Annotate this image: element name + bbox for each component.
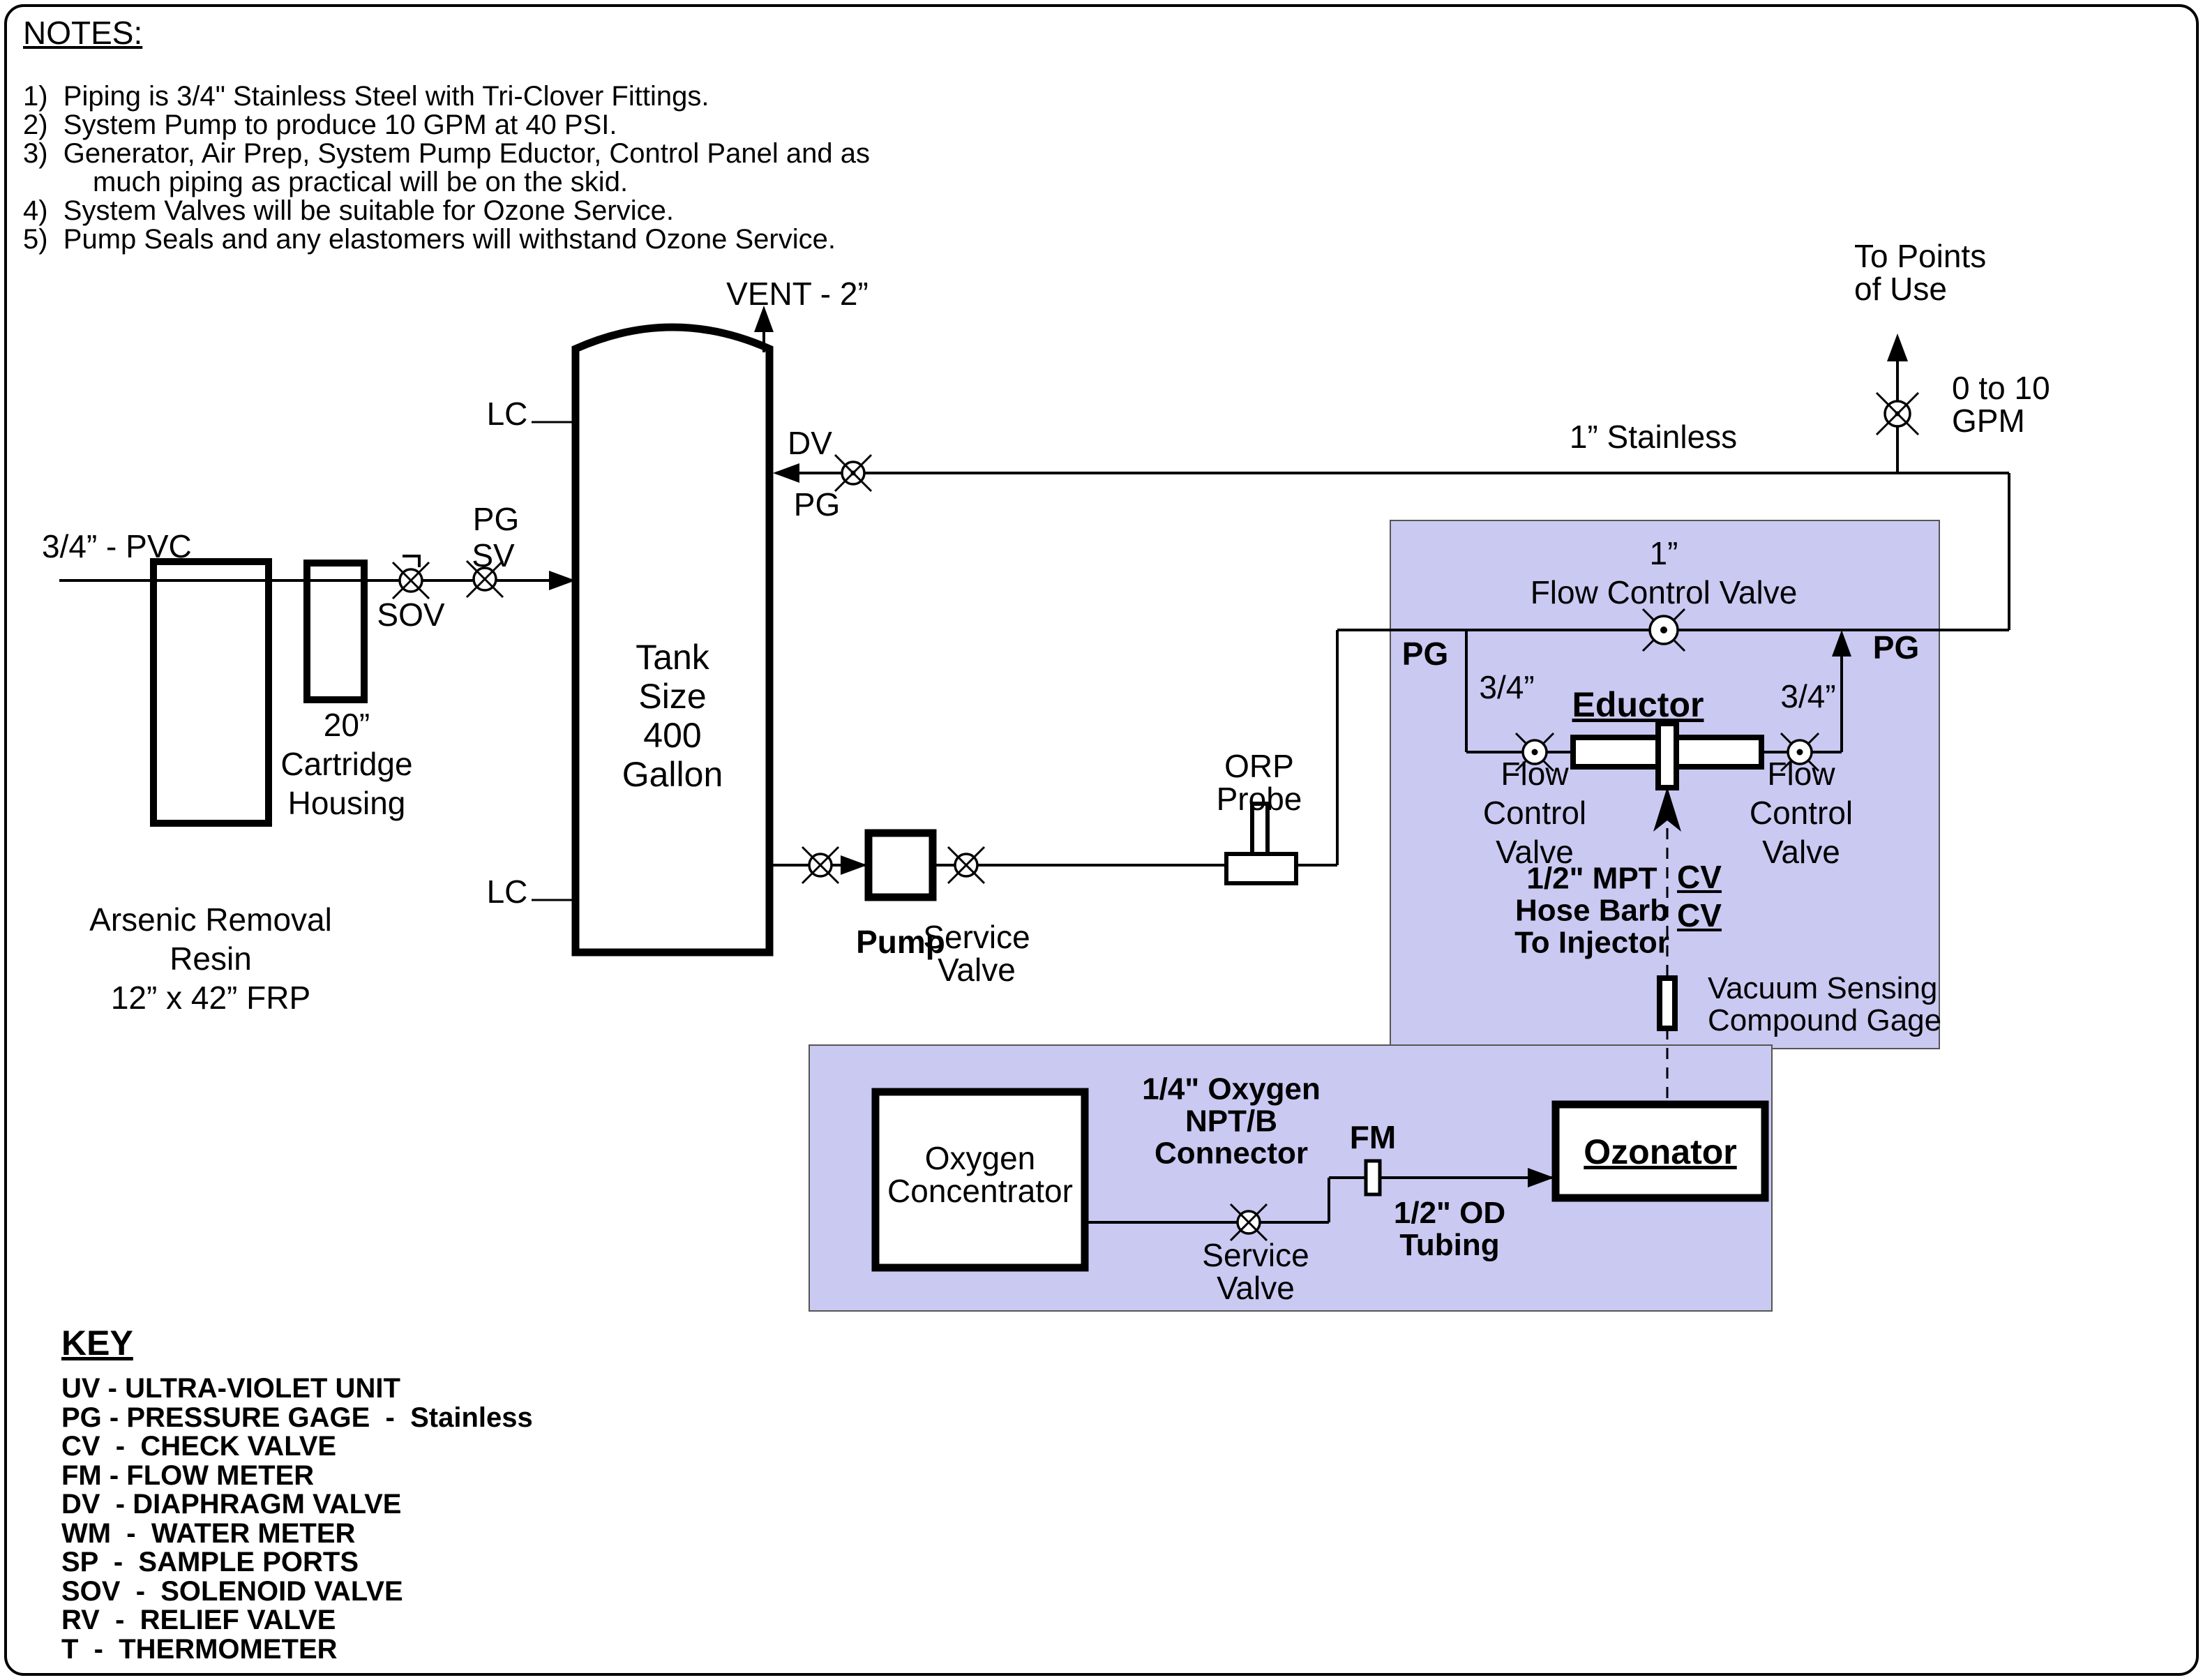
key-item-sp: SP - SAMPLE PORTS: [61, 1548, 533, 1577]
pid-drawing: NOTES: 1) Piping is 3/4" Stainless Steel…: [0, 0, 2203, 1680]
arsenic-resin-vessel: [153, 562, 269, 823]
eductor-label: Eductor: [1572, 685, 1704, 724]
arsenic-resin-label: Arsenic Removal Resin 12” x 42” FRP: [89, 900, 332, 1017]
vacuum-gage-label: Vacuum Sensing Compound Gage: [1708, 973, 1941, 1037]
note-line-1: 1) Piping is 3/4" Stainless Steel with T…: [23, 82, 870, 111]
o2-connector-label: 1/4" Oxygen NPT/B Connector: [1142, 1074, 1321, 1171]
stainless-pipe-label: 1” Stainless: [1570, 417, 1737, 456]
notes-title: NOTES:: [23, 14, 870, 52]
tank-label: Tank Size 400 Gallon: [622, 638, 723, 794]
sv-inlet-label: SV: [472, 536, 514, 575]
orp-probe-base: [1226, 854, 1296, 883]
pump-service-valve-label: Service Valve: [923, 921, 1030, 987]
flow-meter-symbol: [1366, 1161, 1380, 1194]
arrow-into-tank-inlet: [549, 571, 576, 590]
lc-top-label: LC: [487, 394, 528, 433]
od-tubing-label: 1/2" OD Tubing: [1394, 1197, 1505, 1261]
pg-skid-right-label: PG: [1873, 628, 1919, 667]
vacuum-gage-symbol: [1660, 978, 1675, 1028]
arrow-into-pump: [841, 855, 867, 875]
key-item-t: T - THERMOMETER: [61, 1635, 533, 1665]
notes-block: NOTES: 1) Piping is 3/4" Stainless Steel…: [23, 14, 870, 254]
eductor-throat: [1658, 723, 1676, 788]
arrow-to-points-of-use: [1887, 333, 1908, 361]
note-line-2: 2) System Pump to produce 10 GPM at 40 P…: [23, 111, 870, 140]
pg-skid-left-label: PG: [1402, 634, 1448, 673]
sov-label: SOV: [377, 595, 444, 634]
arrow-into-tank-return: [773, 463, 799, 483]
note-line-4: 4) System Valves will be suitable for Oz…: [23, 197, 870, 225]
pg-inlet-label: PG: [473, 500, 519, 539]
note-line-3: 3) Generator, Air Prep, System Pump Educ…: [23, 140, 870, 168]
orp-probe-label: ORP Probe: [1217, 750, 1302, 816]
key-item-wm: WM - WATER METER: [61, 1520, 533, 1549]
lc-bottom-label: LC: [487, 872, 528, 911]
key-title: KEY: [61, 1323, 533, 1363]
sov-valve-icon: [393, 556, 429, 599]
cv-top-label: CV: [1677, 857, 1722, 897]
hose-barb-label: 1/2" MPT Hose Barb To Injector: [1514, 863, 1669, 960]
main-fcv-label: 1” Flow Control Valve: [1531, 534, 1798, 612]
key-item-cv: CV - CHECK VALVE: [61, 1432, 533, 1462]
dv-label: DV: [788, 423, 832, 463]
note-line-3b: much piping as practical will be on the …: [23, 168, 870, 197]
key-item-fm: FM - FLOW METER: [61, 1462, 533, 1491]
key-item-rv: RV - RELIEF VALVE: [61, 1606, 533, 1635]
gpm-label: 0 to 10 GPM: [1952, 372, 2050, 437]
ozonator-label: Ozonator: [1584, 1132, 1736, 1171]
cartridge-housing-vessel: [307, 563, 364, 700]
pvc-inlet-label: 3/4” - PVC: [42, 527, 192, 566]
o2-service-valve-label: Service Valve: [1202, 1239, 1309, 1305]
key-item-dv: DV - DIAPHRAGM VALVE: [61, 1490, 533, 1520]
vent-label: VENT - 2”: [726, 274, 869, 313]
fcv-left-label: Flow Control Valve: [1483, 754, 1586, 871]
oxygen-concentrator-label: Oxygen Concentrator: [887, 1142, 1073, 1208]
note-line-5: 5) Pump Seals and any elastomers will wi…: [23, 225, 870, 254]
cv-bottom-label: CV: [1677, 896, 1722, 935]
cartridge-housing-label: 20” Cartridge Housing: [280, 705, 412, 823]
size-left-label: 3/4”: [1479, 668, 1534, 707]
to-points-of-use-label: To Points of Use: [1854, 240, 1986, 306]
key-block: KEY UV - ULTRA-VIOLET UNIT PG - PRESSURE…: [61, 1323, 533, 1664]
main-flow-control-valve-icon: [1643, 609, 1685, 651]
fm-label: FM: [1350, 1118, 1396, 1157]
fcv-right-label: Flow Control Valve: [1750, 754, 1853, 871]
key-item-uv: UV - ULTRA-VIOLET UNIT: [61, 1374, 533, 1404]
key-item-sov: SOV - SOLENOID VALVE: [61, 1577, 533, 1607]
key-item-pg: PG - PRESSURE GAGE - Stainless: [61, 1404, 533, 1433]
pump-box: [869, 833, 933, 897]
pg-tank-label: PG: [794, 485, 840, 524]
size-right-label: 3/4”: [1780, 677, 1835, 716]
